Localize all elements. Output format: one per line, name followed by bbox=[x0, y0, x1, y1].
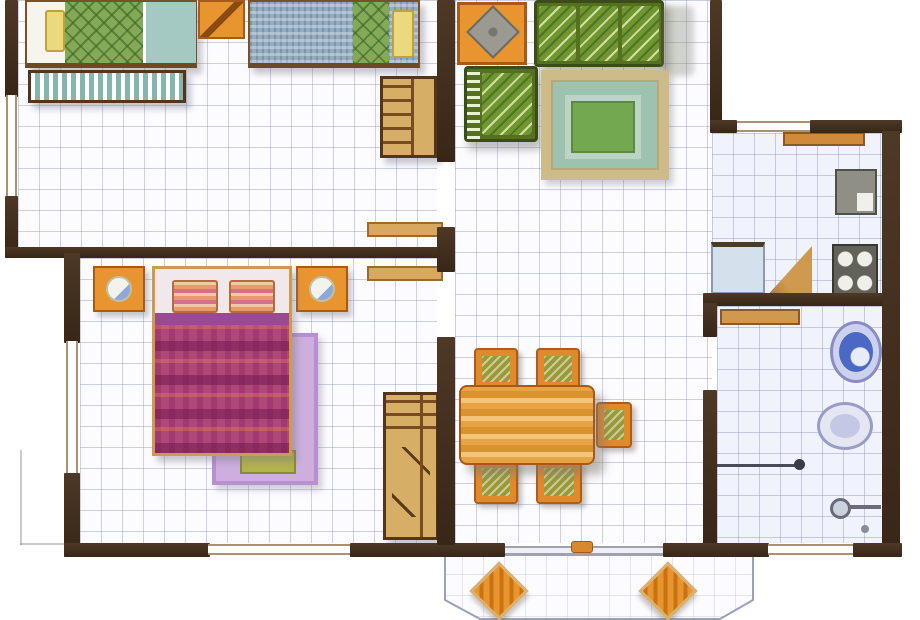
cabinet-divider bbox=[420, 395, 423, 537]
cabinet-items bbox=[392, 447, 430, 517]
dining-chair bbox=[474, 348, 518, 390]
wall-bottom-bath-left bbox=[663, 543, 769, 557]
dining-chair bbox=[596, 402, 632, 448]
basin-bowl bbox=[839, 332, 873, 372]
bed-twin-left bbox=[25, 0, 197, 68]
armchair bbox=[464, 66, 538, 142]
drain-dot bbox=[861, 525, 869, 533]
stove bbox=[832, 244, 878, 298]
bedroom-door-trim-bottom bbox=[367, 266, 443, 281]
wall-bottom-master-left bbox=[64, 543, 210, 557]
pillow-yellow bbox=[392, 10, 414, 58]
lamp bbox=[106, 276, 132, 302]
armchair-arm bbox=[467, 69, 480, 139]
wall-bath-left-lower bbox=[703, 390, 717, 545]
shower-rod bbox=[716, 464, 802, 467]
wall-hall-left-upper bbox=[437, 0, 455, 162]
armchair-cushion bbox=[482, 73, 532, 135]
tall-shelf-cabinet bbox=[383, 392, 439, 540]
floor-plan bbox=[0, 0, 920, 620]
chair-cushion bbox=[482, 356, 510, 382]
corner-table-orange bbox=[198, 0, 245, 39]
toilet-bowl bbox=[830, 414, 860, 438]
shower-head bbox=[830, 498, 851, 519]
window-kitchen-top bbox=[737, 121, 811, 132]
dining-table bbox=[459, 385, 595, 465]
sink-unit bbox=[835, 169, 877, 215]
sofa-three-seat bbox=[534, 0, 664, 67]
sofa-cushion bbox=[580, 6, 617, 61]
window-bath-bottom bbox=[768, 544, 854, 555]
wall-bath-left-upper bbox=[703, 303, 717, 337]
chair-cushion bbox=[544, 356, 572, 382]
patio-edge-line bbox=[20, 543, 66, 545]
sofa-cushion bbox=[539, 6, 576, 61]
toilet bbox=[817, 402, 873, 450]
base-counter-blue bbox=[711, 242, 765, 294]
living-rug bbox=[541, 70, 669, 180]
shower-rod-end bbox=[794, 459, 805, 470]
window-master-bottom bbox=[208, 544, 351, 555]
bed-quilt-green bbox=[65, 2, 143, 63]
wall-hall-left-lower bbox=[437, 337, 455, 545]
chair-cushion bbox=[544, 468, 574, 496]
nightstand-left bbox=[93, 266, 145, 312]
lamp bbox=[309, 276, 335, 302]
wall-living-right-foot bbox=[710, 120, 737, 133]
foot-bench bbox=[28, 70, 186, 103]
wall-right-outer bbox=[882, 131, 900, 557]
bed-band bbox=[155, 313, 289, 325]
window-master-left bbox=[66, 341, 78, 475]
bedroom-door-trim-top bbox=[367, 222, 443, 237]
wall-bottom-bath-right bbox=[853, 543, 902, 557]
side-table bbox=[457, 2, 527, 65]
wall-master-left-upper bbox=[64, 253, 80, 343]
patio-edge-line bbox=[20, 450, 22, 545]
bed-blanket-teal bbox=[143, 2, 196, 63]
pillow-yellow bbox=[45, 10, 65, 52]
sofa-cushion bbox=[622, 6, 659, 61]
chair-cushion bbox=[482, 468, 510, 496]
wardrobe-divider bbox=[411, 79, 414, 155]
bed-twin-right bbox=[248, 0, 420, 68]
wash-basin bbox=[830, 321, 882, 383]
wall-living-right bbox=[710, 0, 722, 124]
wall-bottom-master-right bbox=[350, 543, 505, 557]
sofa-end-shadow bbox=[662, 6, 694, 76]
wall-left-top bbox=[5, 0, 18, 97]
dining-chair bbox=[536, 348, 580, 390]
coffee-table bbox=[565, 95, 641, 159]
dining-chair bbox=[536, 460, 582, 504]
entry-door-handle bbox=[571, 541, 593, 553]
chair-cushion bbox=[604, 410, 624, 440]
wardrobe bbox=[380, 76, 437, 158]
wall-kitchen-bottom bbox=[703, 293, 883, 306]
window-counter bbox=[783, 132, 865, 146]
nightstand-right bbox=[296, 266, 348, 312]
dining-chair bbox=[474, 460, 518, 504]
wardrobe-shelves bbox=[383, 79, 411, 155]
master-bed bbox=[152, 266, 292, 456]
sink-basin bbox=[857, 193, 873, 211]
shower-arm bbox=[849, 505, 881, 509]
bed-quilt-green bbox=[353, 2, 389, 63]
side-table-gray-top bbox=[466, 5, 520, 59]
window-twin-bedroom-left bbox=[6, 95, 17, 198]
cabinet-shelves bbox=[386, 395, 436, 439]
bathroom-door-leaf bbox=[720, 309, 800, 325]
wall-hall-junction bbox=[437, 227, 455, 272]
pillow-right bbox=[229, 280, 275, 313]
pillow-left bbox=[172, 280, 218, 313]
